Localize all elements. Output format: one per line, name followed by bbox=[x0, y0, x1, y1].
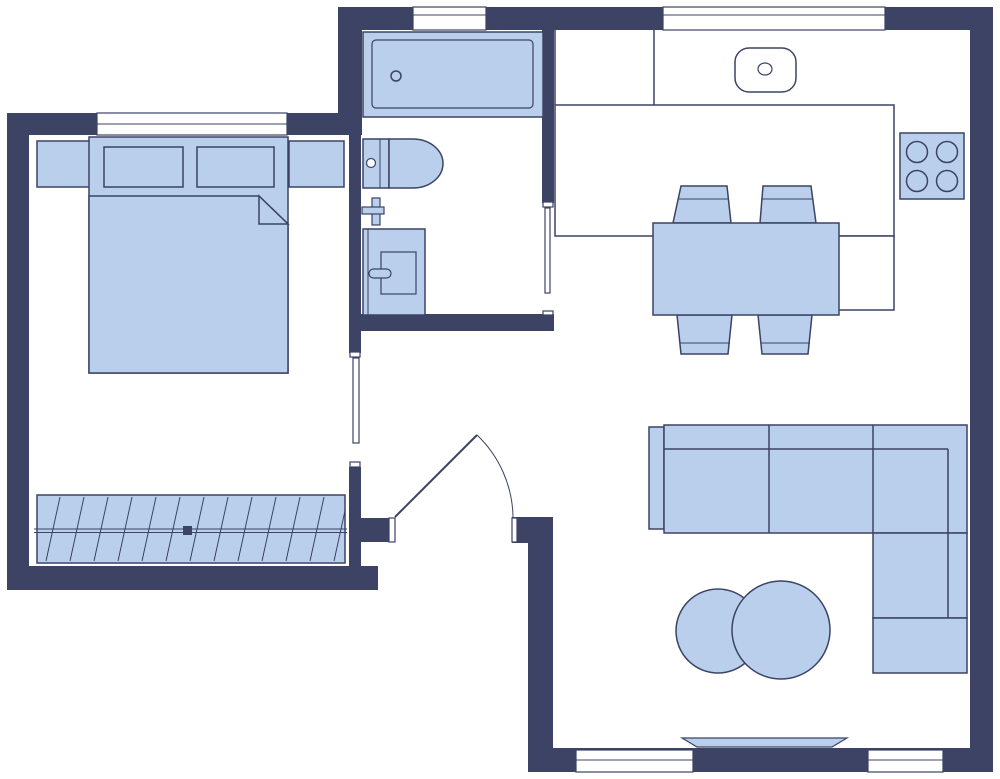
tv-panel bbox=[682, 738, 847, 747]
dining-chair-1 bbox=[673, 186, 731, 223]
entry-wall-left bbox=[349, 518, 395, 542]
bathtub bbox=[363, 32, 543, 117]
bedroom-furniture bbox=[34, 137, 348, 563]
kitchen-furniture bbox=[653, 48, 964, 354]
living-room-furniture bbox=[649, 425, 967, 747]
floor-plan-canvas bbox=[0, 0, 1000, 779]
bathroom-window bbox=[413, 7, 486, 30]
blanket bbox=[89, 196, 288, 373]
entry-door-leaf bbox=[395, 435, 477, 517]
toilet-flush-button bbox=[367, 159, 376, 168]
sofa-armrest-left bbox=[649, 427, 664, 529]
washing-machine-handle bbox=[369, 269, 391, 278]
kitchen-sink bbox=[735, 48, 796, 92]
entry-door-jamb-right bbox=[512, 518, 517, 542]
coffee-table-large bbox=[732, 581, 830, 679]
bedroom-door-jamb-bottom bbox=[350, 462, 360, 467]
sofa-body bbox=[664, 425, 967, 533]
living-window-bottom-left bbox=[576, 750, 693, 772]
bedroom-bathroom-partition bbox=[349, 135, 361, 353]
counter-bench-return bbox=[838, 236, 894, 310]
bathroom-wall-right bbox=[542, 30, 554, 203]
pillow-right bbox=[197, 147, 274, 187]
cooktop bbox=[900, 133, 964, 199]
wall-right bbox=[970, 7, 993, 772]
dining-table bbox=[653, 223, 839, 315]
toilet bbox=[363, 139, 443, 188]
entry-wall-right bbox=[512, 517, 553, 543]
faucet-crossbar bbox=[362, 207, 384, 214]
wall-faucet bbox=[362, 198, 384, 225]
bedroom-door-jamb-top bbox=[350, 352, 360, 357]
wardrobe-rail-handle bbox=[183, 526, 192, 535]
sofa-armrest-bottom bbox=[873, 618, 967, 673]
living-wall-left bbox=[528, 543, 553, 748]
bathroom-door-jamb-bottom bbox=[543, 311, 553, 315]
floor-plan bbox=[0, 0, 1000, 779]
sink-drain bbox=[758, 63, 772, 75]
dining-chair-3 bbox=[677, 315, 732, 354]
nightstand-right bbox=[289, 141, 344, 187]
bathtub-basin bbox=[372, 40, 533, 108]
bathroom-wall-bottom bbox=[361, 314, 554, 331]
bedroom-wall-bottom bbox=[7, 566, 378, 590]
bathroom-furniture bbox=[362, 32, 543, 315]
sofa-chaise bbox=[873, 533, 967, 618]
pillow-left bbox=[104, 147, 183, 187]
toilet-bowl bbox=[389, 139, 443, 188]
living-window-bottom-right bbox=[868, 750, 943, 772]
entry-door-swing-arc bbox=[477, 435, 513, 517]
nightstand-left bbox=[37, 141, 90, 187]
entry-door-jamb-left bbox=[389, 518, 395, 542]
dining-chair-2 bbox=[760, 186, 816, 223]
bedroom-wall-left bbox=[7, 113, 29, 590]
washing-machine bbox=[363, 229, 425, 315]
dining-chair-4 bbox=[758, 315, 812, 354]
bedroom-door-leaf bbox=[353, 358, 359, 443]
kitchen-window bbox=[663, 7, 885, 30]
bedroom-window bbox=[97, 113, 287, 135]
bathroom-door-leaf bbox=[545, 208, 550, 293]
wardrobe bbox=[34, 495, 348, 563]
bathroom-door-jamb-top bbox=[543, 202, 553, 207]
hallway-partition-stub bbox=[349, 467, 361, 568]
